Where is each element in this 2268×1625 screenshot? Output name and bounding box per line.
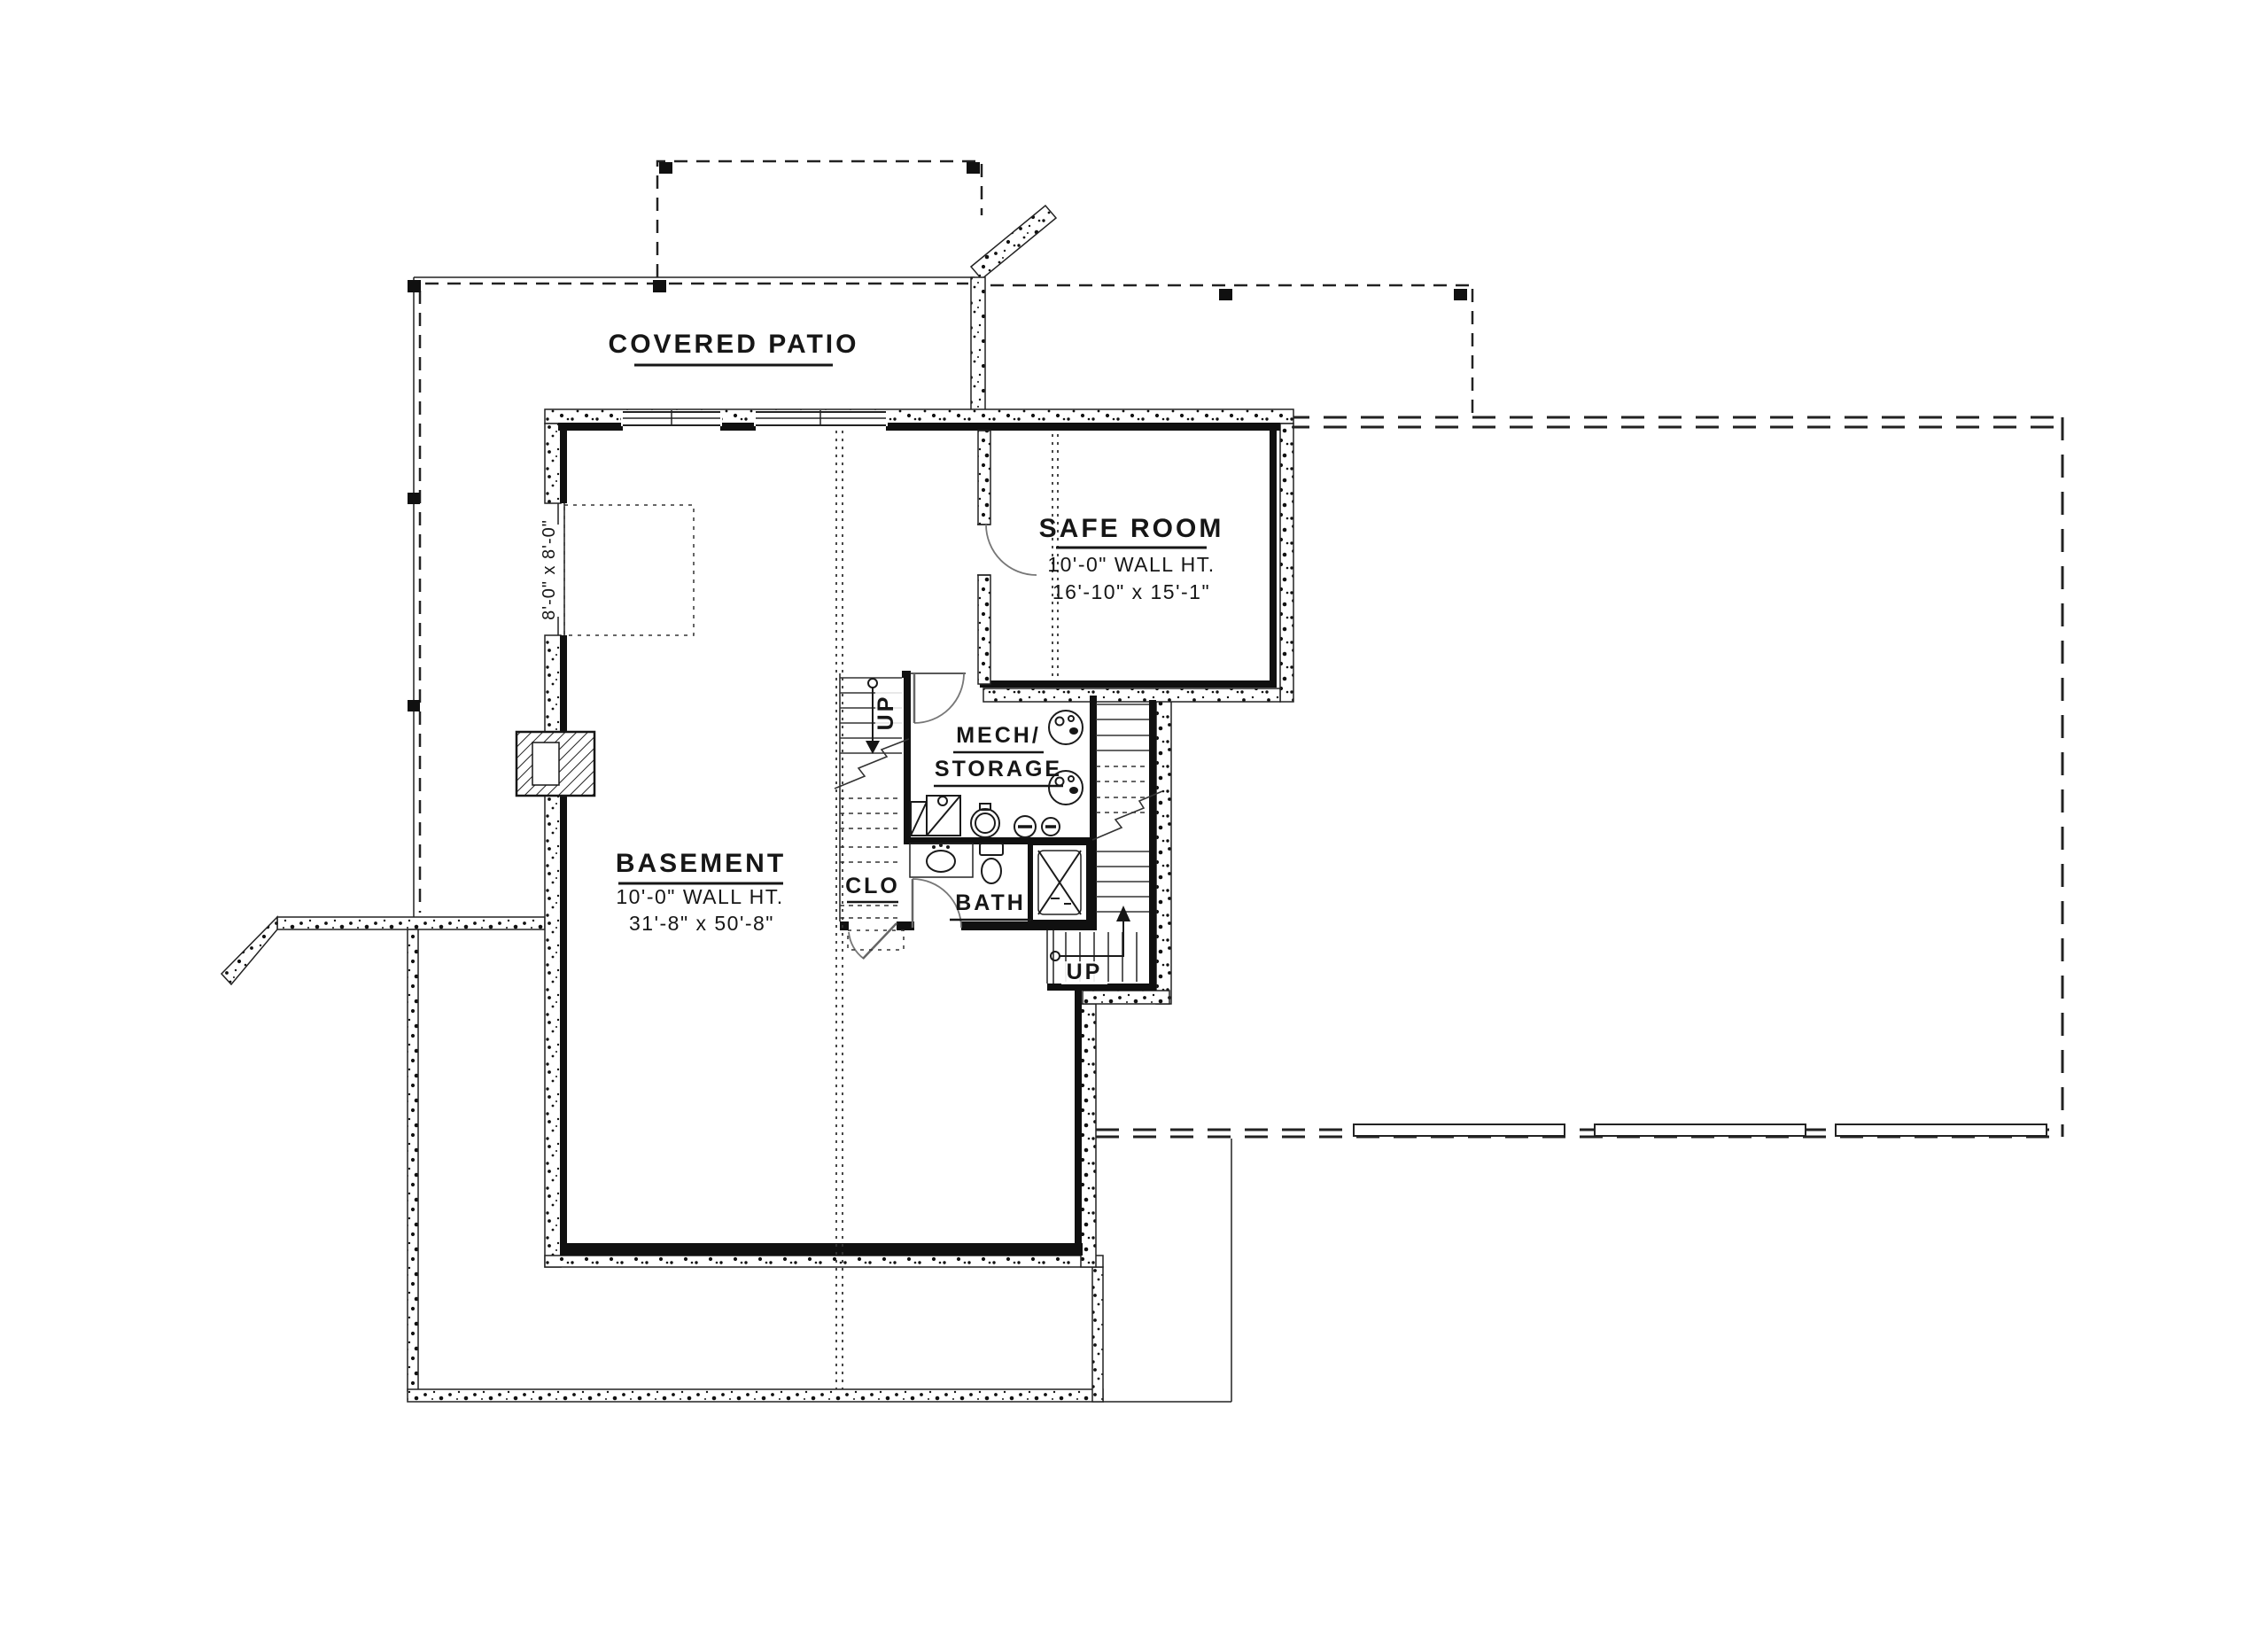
basement-wall-height: 10'-0" WALL HT.: [616, 885, 783, 908]
deck-post-icon: [967, 162, 980, 174]
basement-dimensions: 31'-8" x 50'-8": [629, 912, 774, 935]
closet-label: CLO: [845, 874, 900, 898]
stair-up-label-right: UP: [1067, 960, 1103, 984]
garage-door: [1354, 1124, 1565, 1136]
window-icon: [621, 410, 722, 426]
safe-room-label: SAFE ROOM: [1039, 514, 1224, 543]
deck-post-icon: [659, 162, 672, 174]
fireplace: [517, 732, 594, 796]
garage-door: [1836, 1124, 2047, 1136]
patio-post-icon: [408, 700, 420, 711]
basement-label: BASEMENT: [616, 849, 786, 878]
safe-room-dimensions: 16'-10" x 15'-1": [1052, 580, 1210, 603]
patio-right-wall: [971, 277, 985, 410]
floor-plan-page: COVERED PATIO SAFE ROOM 10'-0" WALL HT. …: [0, 0, 2268, 1625]
mech-label-line1: MECH/: [956, 723, 1041, 748]
shower-icon: [1030, 843, 1089, 922]
garage-door: [1595, 1124, 1806, 1136]
bath-label: BATH: [955, 890, 1026, 915]
north-windows: [621, 410, 888, 426]
garage-doors: [1354, 1124, 2047, 1136]
mech-label-line2: STORAGE: [935, 757, 1062, 781]
post-icon: [1454, 289, 1467, 300]
patio-post-icon: [653, 280, 666, 292]
stair-up-label-left: UP: [874, 695, 898, 731]
patio-post-icon: [408, 280, 421, 292]
patio-door-dimension: 8'-0" x 8'-0": [540, 519, 559, 620]
post-icon: [1219, 289, 1232, 300]
covered-patio-label: COVERED PATIO: [609, 330, 859, 359]
patio-post-icon: [408, 493, 420, 504]
floor-plan-svg: COVERED PATIO SAFE ROOM 10'-0" WALL HT. …: [0, 0, 2268, 1625]
safe-room-wall-height: 10'-0" WALL HT.: [1047, 553, 1215, 576]
window-icon: [754, 410, 888, 426]
